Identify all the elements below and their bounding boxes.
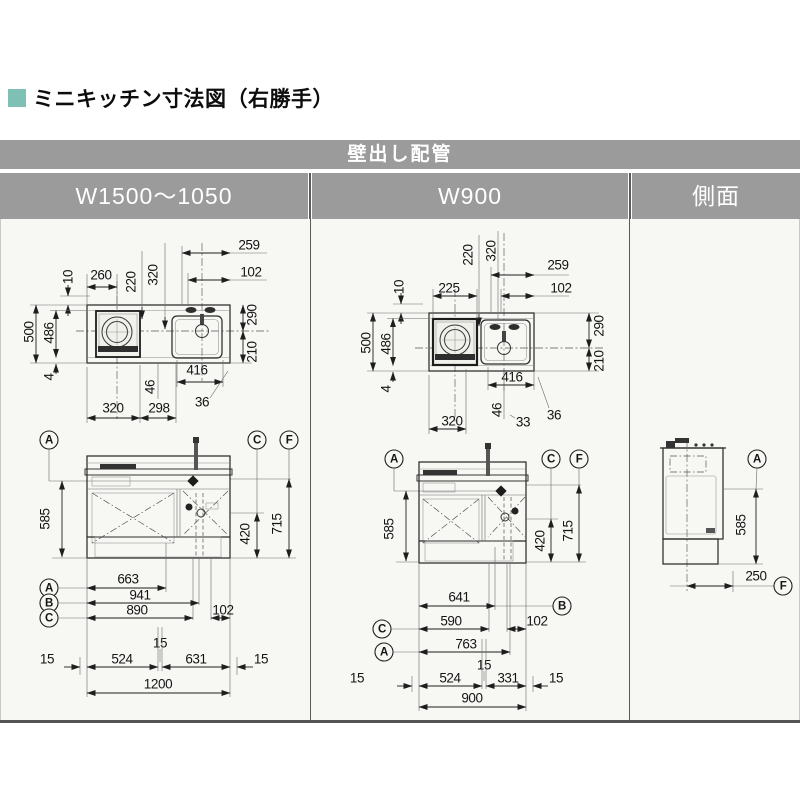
dim-label: 220 [124,271,139,292]
dim-label: 941 [129,588,150,603]
dim-label: 102 [212,603,233,618]
dim-label: 585 [382,518,397,539]
dim-label: 320 [441,414,462,429]
svg-text:A: A [45,583,53,595]
dim-label: 420 [238,523,253,544]
table-body: 259 102 260 220 320 10 [0,219,800,723]
dim-label: 225 [438,281,459,296]
cell-w1500: 259 102 260 220 320 10 [0,219,310,720]
dim-label: 290 [245,304,260,325]
cooktop-plan [96,311,140,357]
cell-w900: 220 320 259 102 225 [310,219,629,720]
page-title: ミニキッチン寸法図（右勝手） [33,83,334,113]
svg-text:C: C [253,435,261,447]
column-header-side: 側面 [632,173,800,219]
dim-label: 420 [533,530,548,551]
page-title-row: ミニキッチン寸法図（右勝手） [8,83,334,113]
dim-label: 102 [526,614,547,629]
side-view: A 585 250 F [660,438,792,595]
dim-label: 210 [245,341,260,362]
sink-cabinet-front [488,485,525,561]
dim-label: 102 [240,265,261,280]
svg-text:B: B [558,601,566,613]
dim-label: 220 [461,244,476,265]
offset-row-c: C 590 102 [373,614,548,639]
dim-label: 250 [745,569,766,584]
dim-label: 36 [195,395,209,410]
svg-text:C: C [378,624,386,636]
dim-label: 715 [561,520,576,541]
dim-label: 890 [126,603,147,618]
svg-text:F: F [576,454,583,466]
w1500-front-view: A C F [38,431,299,697]
dim-label: 1200 [144,677,172,692]
dim-label: 763 [455,637,476,652]
dim-label: 298 [148,401,169,416]
dim-label: 15 [254,652,268,667]
dim-label: 524 [439,671,461,686]
w900-front-view: A C F [350,443,588,711]
svg-text:B: B [45,598,53,610]
dim-label: 416 [501,370,522,385]
column-divider [308,173,312,219]
dim-label: 715 [270,513,285,534]
dim-label: 331 [497,671,518,686]
dim-label: 590 [440,614,461,629]
title-bullet-icon [8,89,26,107]
circle-label-a: A [748,450,766,468]
table-header-piping: 壁出し配管 [0,140,800,169]
circle-label-f: F [774,577,792,595]
w900-drawing: 220 320 259 102 225 [311,219,629,720]
offset-row-b: B 941 [40,588,199,613]
dimension-table: 壁出し配管 W1500～1050 W900 側面 [0,140,800,723]
svg-text:A: A [45,435,53,447]
cell-side: A 585 250 F [629,219,800,720]
dim-label: 320 [146,264,161,285]
dim-label: 416 [186,363,207,378]
svg-text:C: C [547,454,555,466]
dim-label: 500 [359,332,374,353]
svg-text:A: A [380,647,388,659]
dim-label: 641 [448,590,469,605]
dim-label: 10 [61,270,76,284]
w900-plan-view: 220 320 259 102 225 [359,231,607,434]
dim-label: 486 [379,333,394,354]
dim-label: 260 [90,268,111,283]
dim-label: 500 [22,321,37,342]
w1500-drawing: 259 102 260 220 320 10 [0,219,310,720]
dim-label: 4 [42,373,57,381]
svg-text:A: A [390,454,398,466]
dim-label: 486 [42,322,57,343]
dim-label: 15 [40,652,54,667]
circle-label-c: C [542,450,560,468]
dim-label: 585 [38,508,53,529]
dim-label: 10 [392,280,407,294]
svg-text:F: F [286,435,293,447]
column-header-w1500: W1500～1050 [0,173,308,219]
dim-label: 585 [734,514,749,535]
circle-label-c: C [248,431,266,449]
dim-label: 46 [143,380,158,394]
cooktop-plan [433,319,477,365]
dim-label: 102 [550,281,571,296]
circle-label-a: A [40,431,58,449]
svg-text:C: C [45,613,53,625]
dim-label: 210 [592,350,607,371]
svg-text:F: F [780,581,787,593]
dim-label: 46 [490,403,505,417]
sink-plan [172,307,222,358]
circle-label-f: F [280,431,298,449]
dim-label: 663 [117,572,138,587]
dim-label: 36 [547,408,561,423]
offset-row-c: C 890 102 [40,603,234,628]
dim-label: 320 [484,240,499,261]
w1500-plan-view: 259 102 260 220 320 10 [22,238,271,424]
dim-label: 33 [516,415,530,430]
side-drawing: A 585 250 F [630,219,800,720]
dim-label: 259 [547,258,568,273]
dim-label: 320 [102,401,123,416]
dim-label: 290 [592,315,607,336]
dim-label: 524 [111,652,133,667]
svg-text:A: A [753,454,761,466]
dim-label: 15 [350,671,364,686]
dim-label: 15 [153,636,167,651]
fridge-door-front [423,499,479,543]
dim-label: 15 [477,658,491,673]
column-header-w900: W900 [312,173,628,219]
dim-label: 15 [549,671,563,686]
dim-label: 4 [379,385,394,393]
circle-label-f: F [570,450,588,468]
circle-label-a: A [385,450,403,468]
dim-label: 259 [238,238,259,253]
fridge-door-front [92,493,174,543]
column-header-row: W1500～1050 W900 側面 [0,173,800,219]
dim-label: 900 [461,691,482,706]
dim-label: 631 [185,652,206,667]
column-divider [628,173,632,219]
sink-plan [481,320,530,364]
